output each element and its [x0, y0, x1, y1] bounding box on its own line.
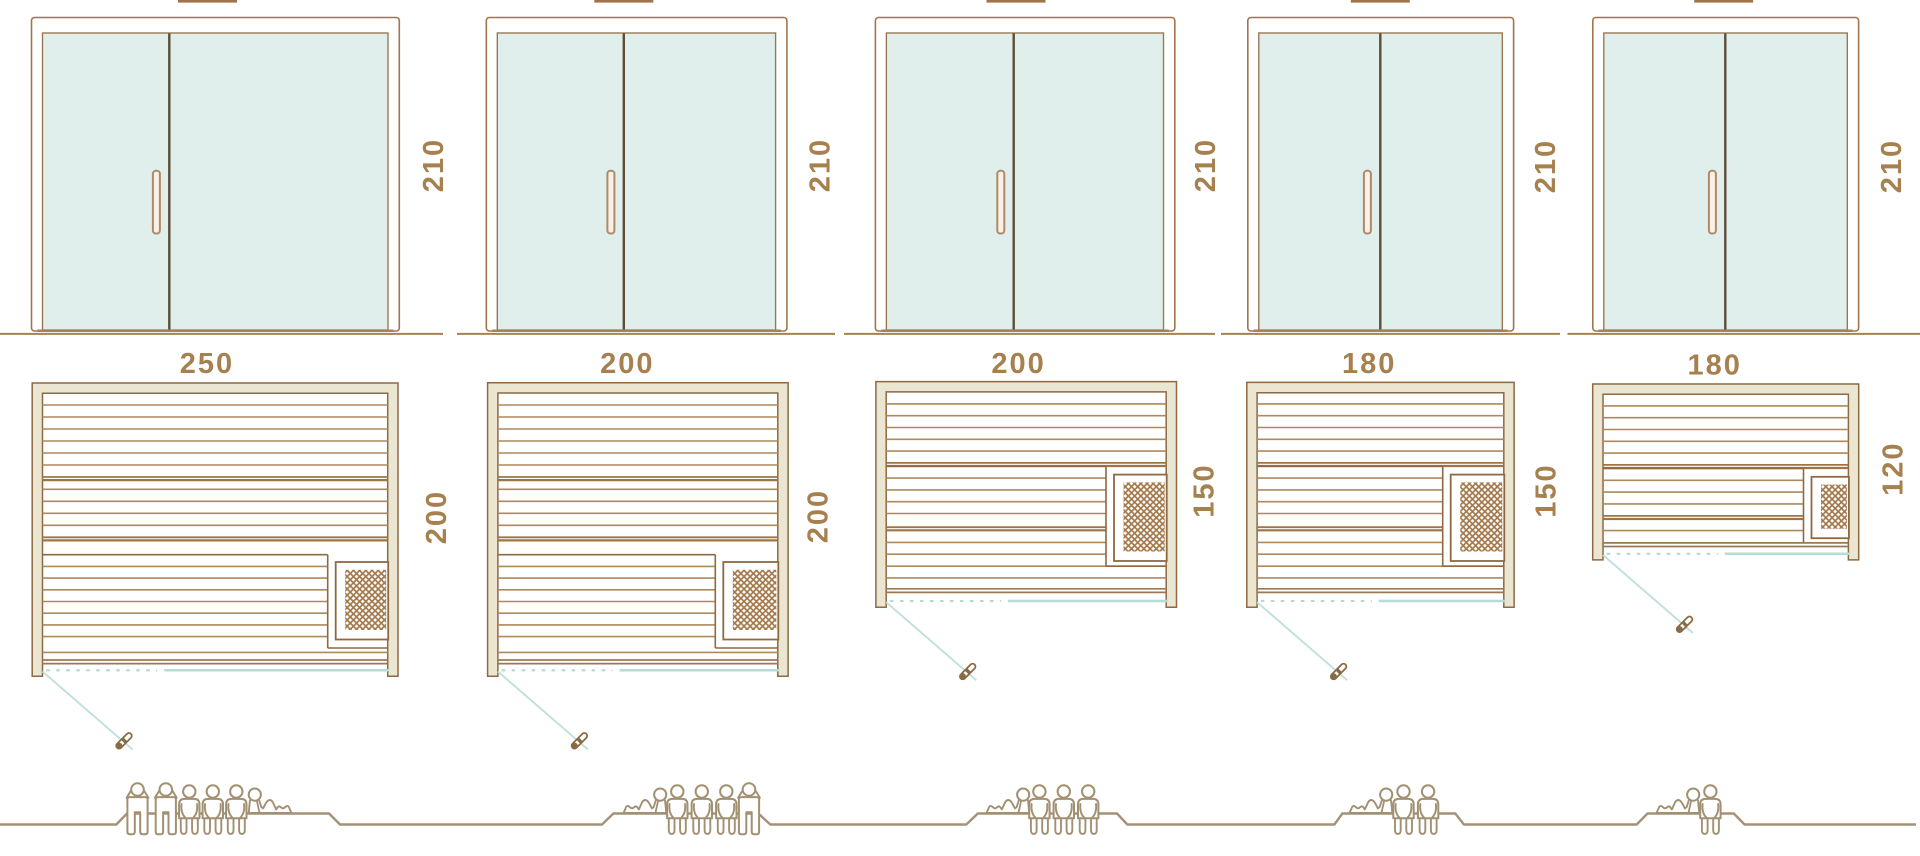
svg-text:200: 200	[421, 490, 453, 544]
svg-text:180: 180	[1342, 348, 1396, 380]
svg-text:150: 150	[1531, 463, 1563, 517]
svg-text:200: 200	[600, 348, 654, 380]
svg-text:180: 180	[1688, 350, 1742, 382]
svg-text:250: 250	[180, 348, 234, 380]
svg-text:210: 210	[1530, 139, 1562, 193]
svg-text:210: 210	[1876, 139, 1908, 193]
svg-text:200: 200	[803, 489, 835, 543]
svg-text:210: 210	[418, 138, 450, 192]
svg-text:210: 210	[805, 138, 837, 192]
svg-text:200: 200	[991, 348, 1045, 380]
svg-text:120: 120	[1878, 442, 1910, 496]
svg-text:150: 150	[1189, 463, 1221, 517]
svg-text:210: 210	[1190, 138, 1222, 192]
